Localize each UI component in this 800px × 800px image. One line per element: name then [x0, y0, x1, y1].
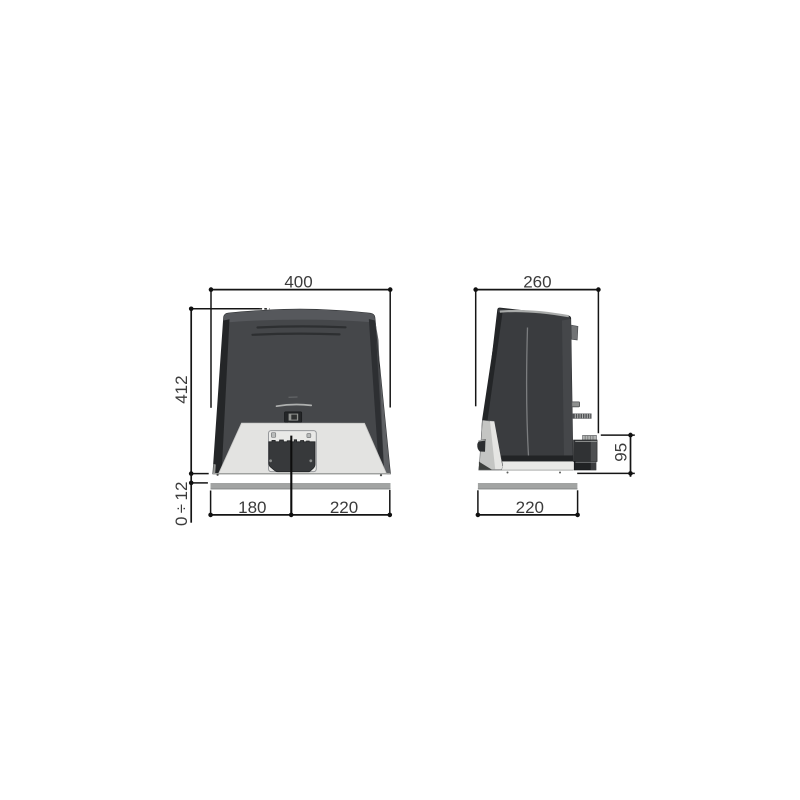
- svg-text:220: 220: [330, 498, 358, 517]
- svg-text:412: 412: [172, 375, 191, 403]
- svg-text:180: 180: [238, 498, 266, 517]
- svg-text:95: 95: [612, 443, 631, 462]
- svg-text:0 ÷ 12: 0 ÷ 12: [172, 482, 191, 527]
- svg-text:400: 400: [284, 273, 312, 292]
- svg-text:220: 220: [516, 498, 544, 517]
- svg-text:260: 260: [523, 273, 551, 292]
